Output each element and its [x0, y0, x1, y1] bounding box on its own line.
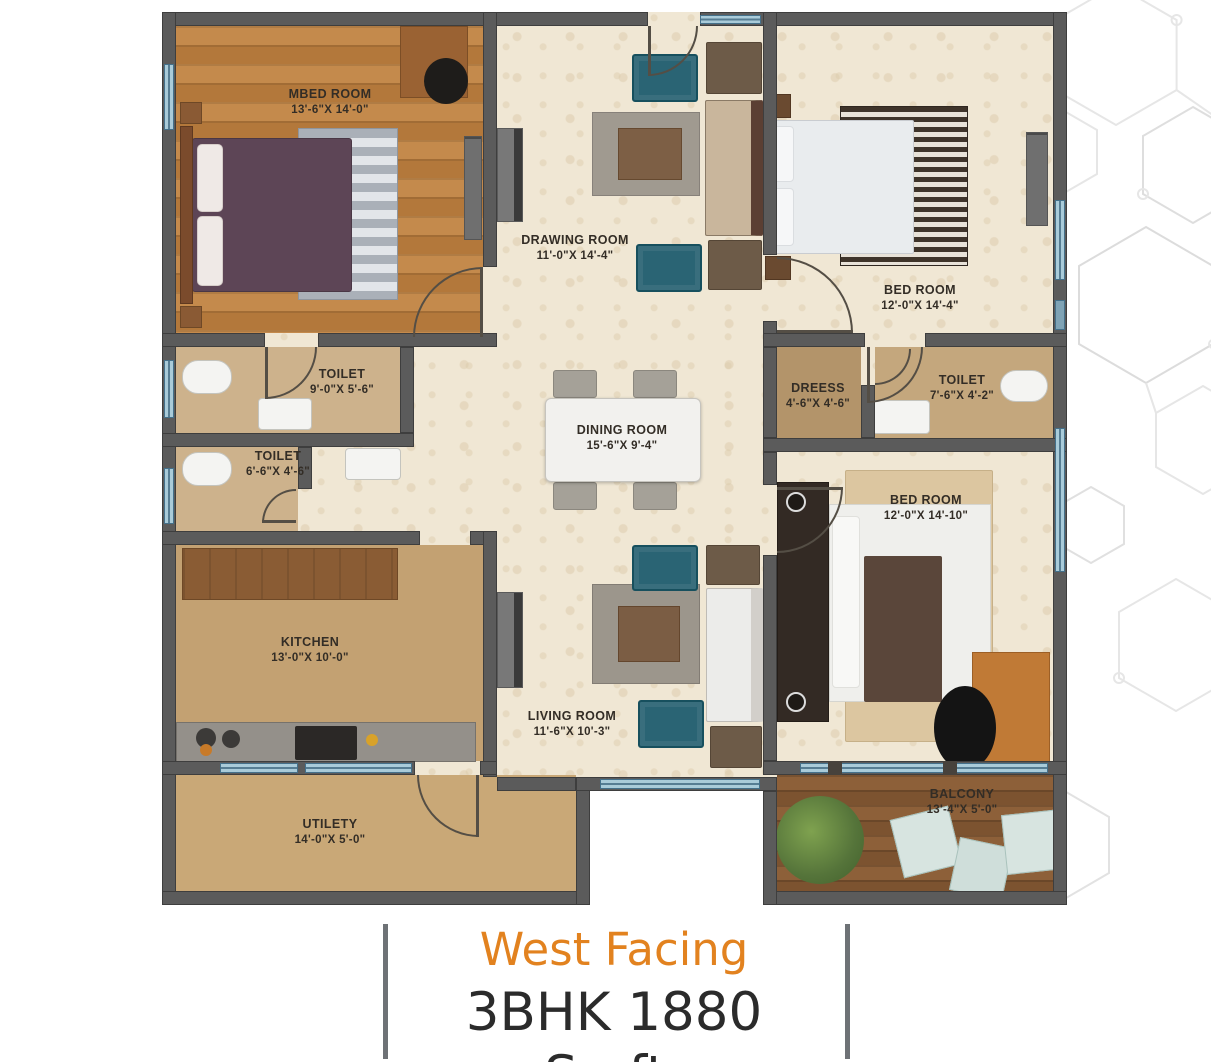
spec-text: 3BHK 1880 Sq.ft.: [388, 981, 840, 1062]
room-dims: 14'-0"X 5'-0": [295, 833, 366, 848]
wall: [497, 777, 576, 791]
drawing-sofa: [705, 100, 763, 236]
living-side-table: [710, 726, 762, 768]
room-dims: 11'-6"X 10'-3": [528, 725, 616, 740]
room-name: MBED ROOM: [289, 86, 372, 103]
room-label-utility: UTILETY14'-0"X 5'-0": [295, 816, 366, 848]
wall: [576, 777, 590, 905]
drawing-tv-unit: [497, 128, 523, 222]
living-sofa: [706, 588, 763, 722]
room-label-mbed: MBED ROOM13'-6"X 14'-0": [289, 86, 372, 118]
hall-wash-basin: [345, 448, 401, 480]
facing-text: West Facing: [388, 920, 840, 981]
window: [700, 15, 761, 24]
window: [1055, 200, 1065, 280]
room-name: TOILET: [930, 372, 994, 389]
dining-chair: [633, 370, 677, 398]
wall: [162, 433, 414, 447]
kitchen-pot: [366, 734, 378, 746]
drawing-side-table: [708, 240, 762, 290]
balcony-plant: [776, 796, 864, 884]
door-leaf: [648, 26, 651, 76]
door-leaf: [480, 267, 483, 337]
room-dims: 12'-0"X 14'-4": [881, 299, 958, 314]
living-tv-unit: [497, 592, 523, 688]
room-label-dining: DINING ROOM15'-6"X 9'-4": [577, 422, 668, 454]
room-name: BED ROOM: [881, 282, 958, 299]
room-dims: 12'-0"X 14'-10": [884, 509, 968, 524]
room-label-balcony: BALCONY13'-4"X 5'-0": [927, 786, 998, 818]
window: [164, 360, 174, 418]
wall: [763, 452, 777, 485]
door-leaf: [777, 330, 853, 333]
window: [600, 779, 760, 789]
bedroom2-pillow: [832, 516, 860, 688]
room-name: TOILET: [310, 366, 374, 383]
window: [164, 64, 174, 130]
balcony-post: [828, 761, 842, 775]
bedroom2-desk-chair: [934, 686, 996, 770]
wall: [763, 438, 1067, 452]
room-name: DRAWING ROOM: [521, 232, 629, 249]
dining-chair: [553, 482, 597, 510]
kitchen-pot: [200, 744, 212, 756]
wall: [400, 347, 414, 433]
room-label-dress: DREESS4'-6"X 4'-6": [786, 380, 850, 412]
room-dims: 13'-4"X 5'-0": [927, 803, 998, 818]
wall: [483, 12, 497, 267]
wall: [925, 333, 1067, 347]
room-dims: 11'-0"X 14'-4": [521, 249, 629, 264]
window: [305, 763, 412, 773]
wall: [483, 531, 497, 777]
window: [220, 763, 298, 773]
master-headboard: [180, 126, 193, 304]
wall: [763, 347, 777, 438]
wall: [763, 333, 865, 347]
wall: [162, 12, 648, 26]
master-side-table: [180, 102, 202, 124]
room-name: BALCONY: [927, 786, 998, 803]
drawing-coffee-table-top: [618, 128, 682, 180]
room-name: DINING ROOM: [577, 422, 668, 439]
master-wardrobe: [464, 136, 482, 240]
drawing-armchair: [636, 244, 702, 292]
caption-divider-right: [845, 924, 850, 1059]
room-label-bedroom2: BED ROOM12'-0"X 14'-10": [884, 492, 968, 524]
wall: [763, 12, 777, 255]
room-name: DREESS: [786, 380, 850, 397]
bedroom1-wardrobe: [1026, 132, 1048, 226]
room-dims: 6'-6"X 4'-6": [246, 465, 310, 480]
master-pillow: [197, 216, 223, 286]
room-dims: 7'-6"X 4'-2": [930, 389, 994, 404]
dining-chair: [633, 482, 677, 510]
room-name: BED ROOM: [884, 492, 968, 509]
window: [1055, 428, 1065, 572]
kitchen-sink: [222, 730, 240, 748]
room-label-bedroom1: BED ROOM12'-0"X 14'-4": [881, 282, 958, 314]
room-dims: 13'-0"X 10'-0": [271, 651, 348, 666]
exterior-notch: [590, 791, 763, 907]
door-leaf: [265, 347, 268, 399]
kitchen-cabinet: [182, 548, 398, 600]
drawing-side-table: [706, 42, 762, 94]
room-label-toilet2: TOILET6'-6"X 4'-6": [246, 448, 310, 480]
wall: [162, 531, 420, 545]
window: [1055, 300, 1065, 330]
living-side-table: [706, 545, 760, 585]
wall: [763, 791, 777, 905]
room-label-living: LIVING ROOM11'-6"X 10'-3": [528, 708, 616, 740]
balcony-post: [943, 761, 957, 775]
wall: [162, 891, 590, 905]
room-dims: 4'-6"X 4'-6": [786, 397, 850, 412]
room-label-toilet1: TOILET9'-0"X 5'-6": [310, 366, 374, 398]
floorplan-page: MBED ROOM13'-6"X 14'-0" DRAWING ROOM11'-…: [0, 0, 1211, 1062]
room-dims: 13'-6"X 14'-0": [289, 103, 372, 118]
room-label-toilet3: TOILET7'-6"X 4'-2": [930, 372, 994, 404]
toilet1-wc: [182, 360, 232, 394]
toilet2-wc: [182, 452, 232, 486]
room-label-kitchen: KITCHEN13'-0"X 10'-0": [271, 634, 348, 666]
room-dims: 15'-6"X 9'-4": [577, 439, 668, 454]
room-dims: 9'-0"X 5'-6": [310, 383, 374, 398]
room-label-drawing: DRAWING ROOM11'-0"X 14'-4": [521, 232, 629, 264]
kitchen-stove: [295, 726, 357, 760]
wall: [763, 555, 777, 761]
toilet3-wc: [1000, 370, 1048, 402]
door-leaf: [476, 775, 479, 837]
window: [164, 468, 174, 524]
door-leaf: [262, 520, 296, 523]
room-utility-floor: [176, 775, 576, 891]
master-desk-chair: [424, 58, 468, 104]
wall: [162, 333, 265, 347]
room-name: TOILET: [246, 448, 310, 465]
living-coffee-table-top: [618, 606, 680, 662]
room-name: KITCHEN: [271, 634, 348, 651]
master-side-table: [180, 306, 202, 328]
room-name: UTILETY: [295, 816, 366, 833]
wall: [763, 891, 1067, 905]
dining-chair: [553, 370, 597, 398]
bedroom2-knob: [786, 692, 806, 712]
door-leaf: [867, 347, 870, 403]
living-armchair: [638, 700, 704, 748]
bedroom2-blanket: [864, 556, 942, 702]
toilet1-basin: [258, 398, 312, 430]
wall: [480, 761, 497, 775]
door-leaf: [777, 487, 843, 490]
living-armchair: [632, 545, 698, 591]
master-pillow: [197, 144, 223, 212]
room-name: LIVING ROOM: [528, 708, 616, 725]
toilet3-basin: [872, 400, 930, 434]
caption: West Facing 3BHK 1880 Sq.ft.: [388, 920, 840, 1062]
